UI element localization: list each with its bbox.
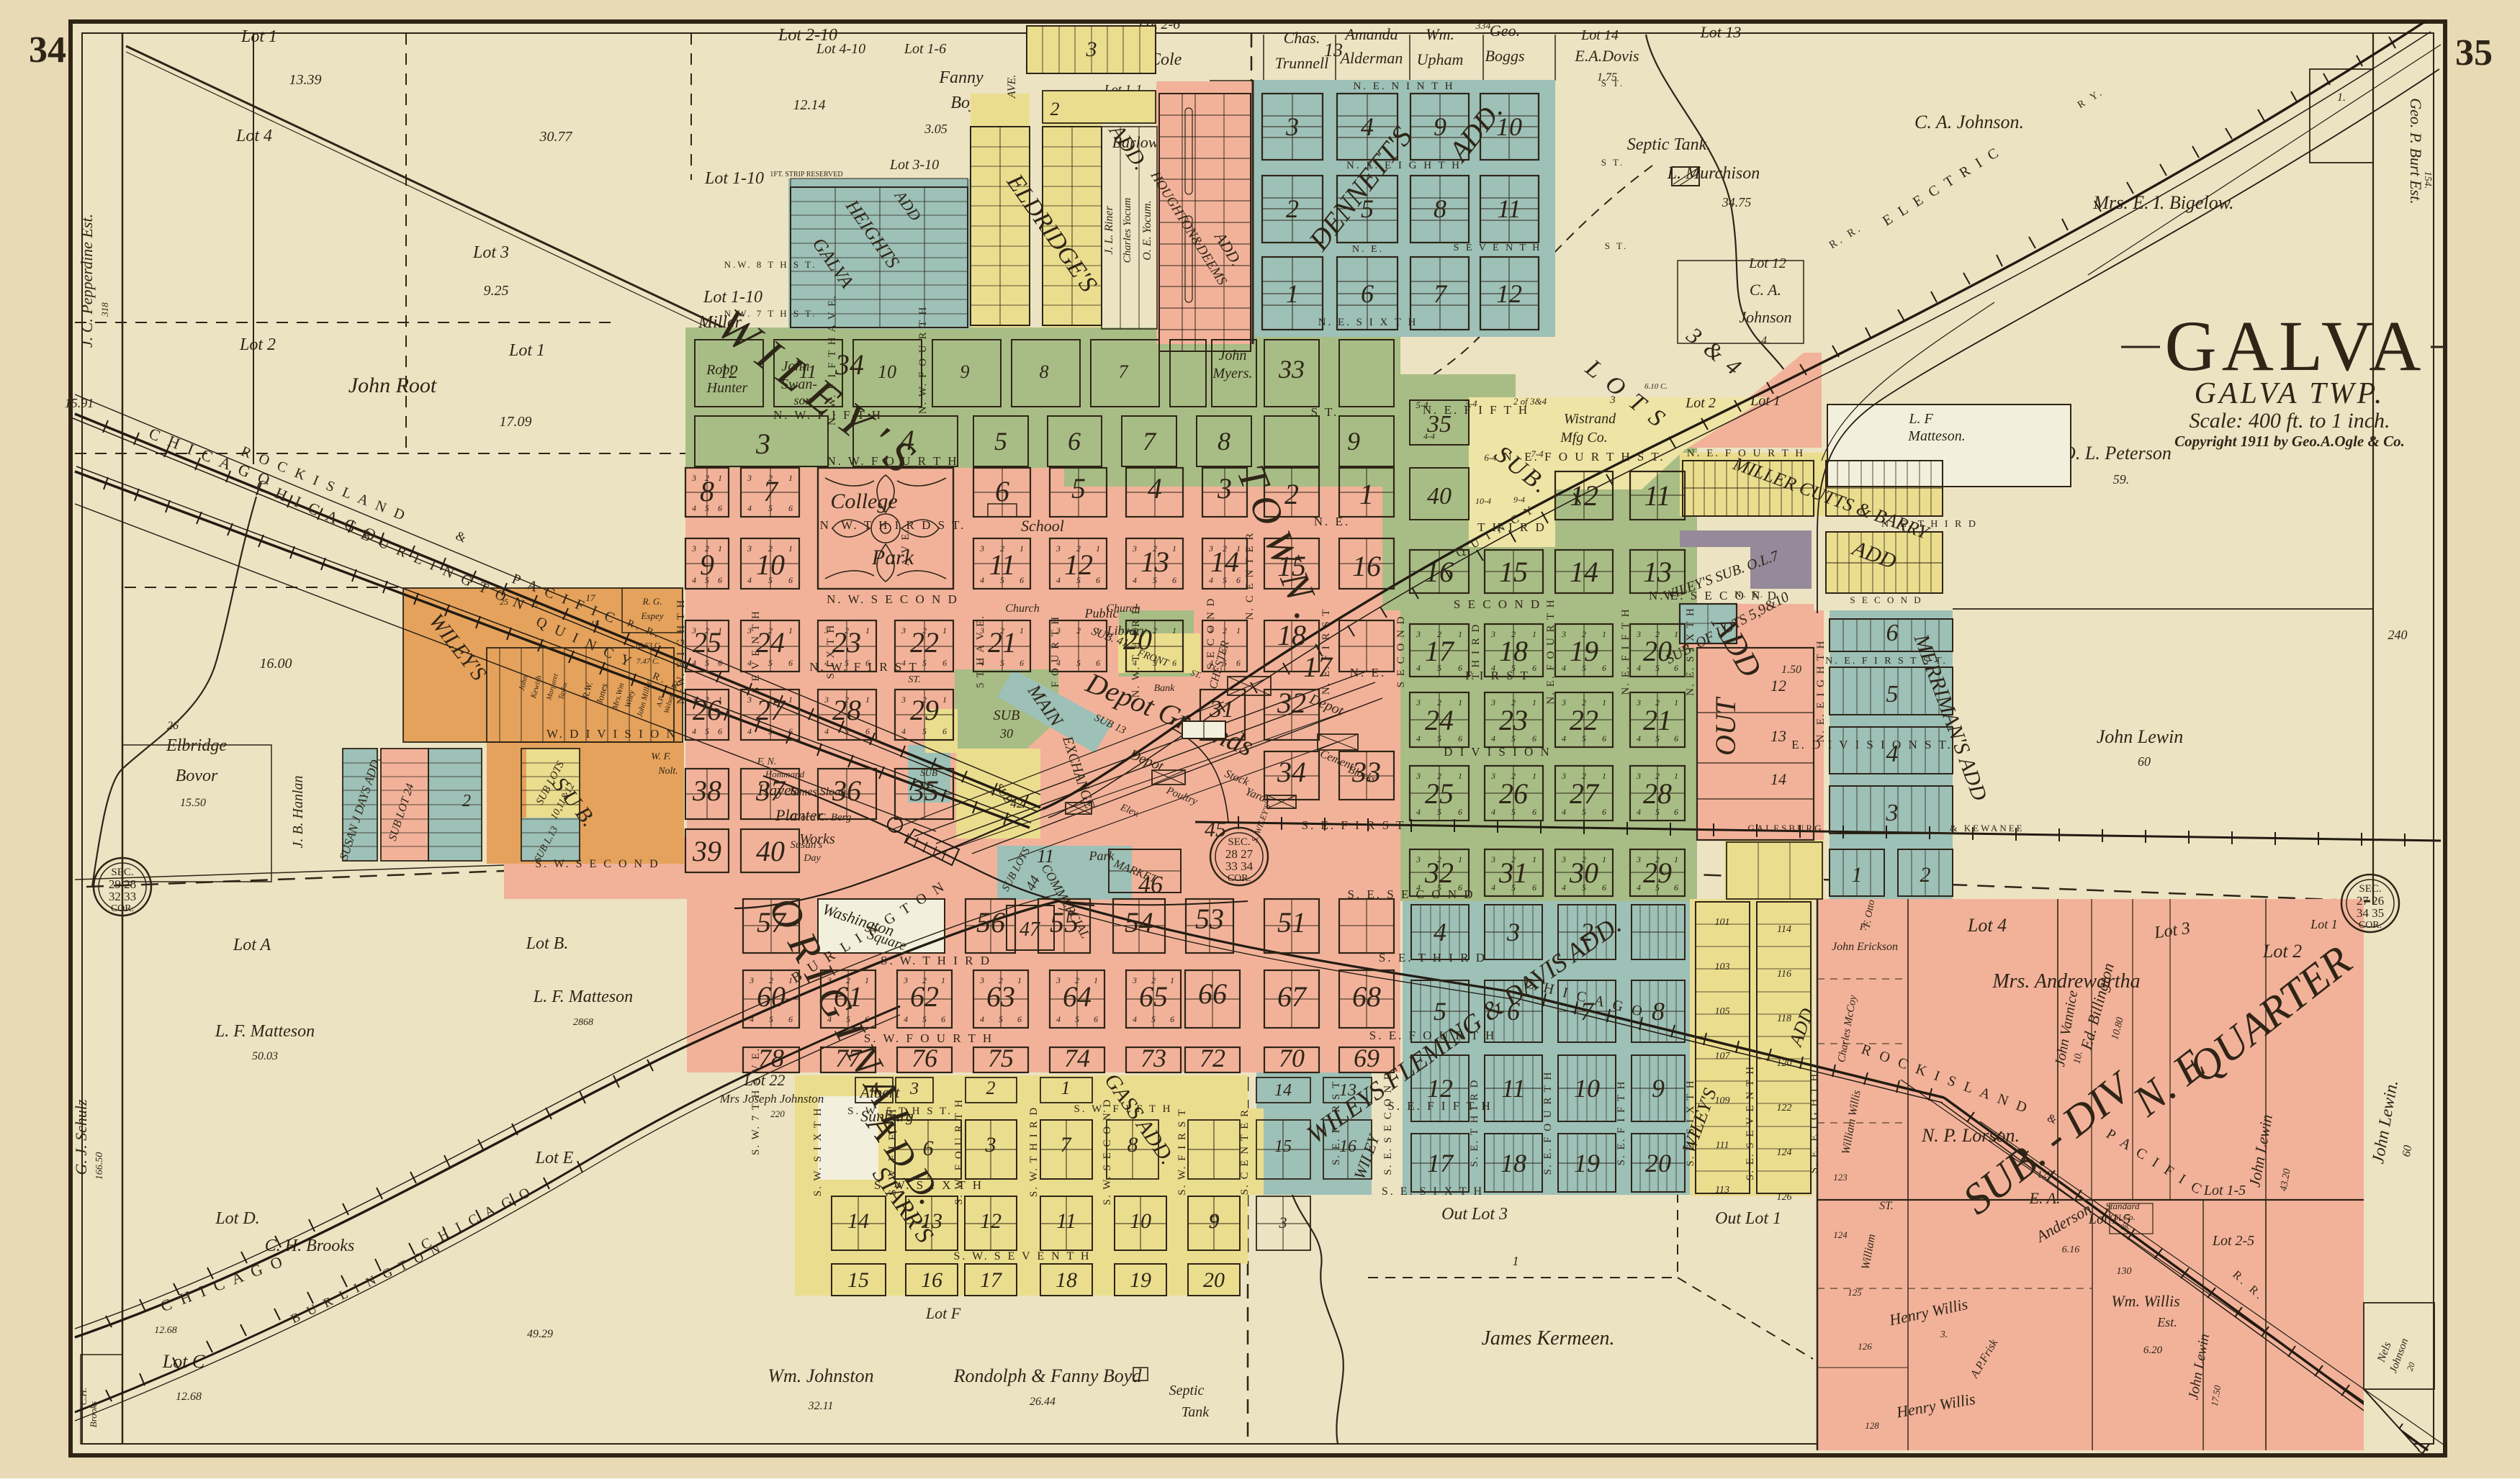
svg-text:Planter: Planter bbox=[775, 806, 823, 824]
svg-text:6: 6 bbox=[788, 503, 793, 513]
svg-text:1: 1 bbox=[788, 625, 793, 636]
svg-text:2: 2 bbox=[1582, 854, 1586, 864]
svg-text:12.14: 12.14 bbox=[793, 97, 826, 113]
svg-text:3: 3 bbox=[1609, 394, 1616, 406]
svg-text:111: 111 bbox=[1716, 1140, 1729, 1151]
svg-text:2: 2 bbox=[1223, 625, 1227, 636]
svg-text:5: 5 bbox=[1511, 733, 1516, 744]
svg-text:18: 18 bbox=[1056, 1268, 1077, 1292]
svg-text:N. E.: N. E. bbox=[1314, 515, 1350, 528]
svg-text:1: 1 bbox=[1172, 625, 1176, 636]
svg-text:123: 123 bbox=[1833, 1172, 1848, 1183]
svg-text:19: 19 bbox=[1574, 1149, 1600, 1178]
svg-text:N. E. E I G H T H: N. E. E I G H T H bbox=[1815, 639, 1827, 742]
svg-text:2: 2 bbox=[1050, 99, 1060, 119]
svg-text:3: 3 bbox=[1490, 629, 1495, 639]
svg-text:15.91: 15.91 bbox=[65, 396, 94, 410]
svg-text:6: 6 bbox=[1532, 663, 1536, 673]
svg-text:N. W. F O U R T H: N. W. F O U R T H bbox=[827, 454, 958, 468]
svg-text:1.50: 1.50 bbox=[1781, 664, 1801, 676]
svg-text:6: 6 bbox=[718, 658, 722, 668]
svg-text:6: 6 bbox=[1017, 1014, 1022, 1024]
svg-text:5: 5 bbox=[1437, 733, 1441, 744]
svg-text:26.44: 26.44 bbox=[1030, 1396, 1056, 1408]
svg-text:5: 5 bbox=[1437, 807, 1441, 817]
svg-text:68: 68 bbox=[1352, 980, 1381, 1013]
svg-text:9: 9 bbox=[1210, 1211, 1219, 1232]
svg-text:N. E. F I F T H: N. E. F I F T H bbox=[1620, 607, 1632, 695]
svg-text:3: 3 bbox=[755, 428, 770, 460]
svg-text:John: John bbox=[1219, 348, 1247, 363]
svg-text:6: 6 bbox=[1602, 663, 1606, 673]
svg-text:130: 130 bbox=[2117, 1266, 2132, 1277]
svg-text:College: College bbox=[830, 489, 897, 513]
svg-text:6: 6 bbox=[1361, 279, 1374, 308]
svg-text:6-4: 6-4 bbox=[1484, 452, 1497, 463]
svg-text:3: 3 bbox=[1636, 697, 1641, 708]
svg-text:6: 6 bbox=[1458, 663, 1462, 673]
svg-text:1: 1 bbox=[1532, 629, 1536, 639]
svg-text:W. D I V I S I O N: W. D I V I S I O N bbox=[546, 727, 678, 741]
svg-text:G. J. Schulz: G. J. Schulz bbox=[72, 1099, 90, 1175]
svg-text:2: 2 bbox=[845, 695, 849, 705]
svg-text:Nolt.: Nolt. bbox=[657, 766, 678, 777]
svg-text:E.A.Dovis: E.A.Dovis bbox=[1574, 47, 1639, 65]
svg-text:Fanny: Fanny bbox=[938, 68, 984, 87]
svg-text:6: 6 bbox=[1068, 427, 1081, 456]
svg-text:12: 12 bbox=[1770, 677, 1786, 695]
svg-text:4: 4 bbox=[1209, 575, 1213, 585]
svg-text:2: 2 bbox=[986, 1077, 996, 1098]
svg-text:SUB: SUB bbox=[920, 767, 937, 778]
svg-text:3: 3 bbox=[1561, 771, 1566, 781]
svg-text:10: 10 bbox=[878, 361, 896, 382]
svg-text:1: 1 bbox=[1020, 625, 1024, 636]
svg-text:S. W. T H I R D: S. W. T H I R D bbox=[881, 954, 991, 967]
svg-text:2: 2 bbox=[922, 625, 927, 636]
svg-text:6: 6 bbox=[1532, 882, 1536, 893]
svg-text:6: 6 bbox=[1094, 1014, 1098, 1024]
svg-text:2: 2 bbox=[768, 543, 773, 554]
svg-text:S. W. F O U R T H: S. W. F O U R T H bbox=[864, 1031, 994, 1045]
svg-text:8: 8 bbox=[1652, 997, 1665, 1026]
svg-text:Rondolph & Fanny Boyd: Rondolph & Fanny Boyd bbox=[953, 1365, 1143, 1386]
svg-text:S. W. F I F T H: S. W. F I F T H bbox=[1074, 1103, 1173, 1115]
svg-text:5: 5 bbox=[1076, 575, 1081, 585]
svg-text:S. E. T H I R D: S. E. T H I R D bbox=[1379, 951, 1487, 964]
svg-text:67: 67 bbox=[1277, 980, 1308, 1013]
svg-text:N. E. F I R S T S T.: N. E. F I R S T S T. bbox=[1825, 656, 1948, 667]
svg-text:25: 25 bbox=[1425, 777, 1454, 810]
svg-text:S. E. F I F T H: S. E. F I F T H bbox=[1616, 1080, 1627, 1166]
svg-text:11: 11 bbox=[1501, 1074, 1525, 1103]
svg-text:23: 23 bbox=[1499, 704, 1528, 736]
svg-text:3: 3 bbox=[1636, 629, 1641, 639]
svg-text:32 33: 32 33 bbox=[109, 890, 136, 903]
svg-text:Elbridge: Elbridge bbox=[166, 736, 227, 755]
svg-text:7: 7 bbox=[534, 602, 539, 610]
svg-text:4: 4 bbox=[1491, 733, 1495, 744]
svg-text:1: 1 bbox=[1674, 697, 1678, 708]
svg-text:14: 14 bbox=[847, 1209, 869, 1233]
svg-text:4: 4 bbox=[1148, 472, 1162, 505]
svg-text:2: 2 bbox=[1511, 771, 1516, 781]
svg-text:76: 76 bbox=[912, 1044, 937, 1072]
svg-text:5: 5 bbox=[705, 658, 709, 668]
svg-text:Day: Day bbox=[803, 853, 821, 864]
svg-text:10: 10 bbox=[1574, 1074, 1600, 1103]
svg-text:15: 15 bbox=[847, 1268, 869, 1292]
svg-text:101: 101 bbox=[1715, 917, 1730, 928]
svg-text:4: 4 bbox=[1133, 1014, 1137, 1024]
svg-text:5: 5 bbox=[1151, 1014, 1156, 1024]
svg-text:Copyright 1911 by Geo.A.Ogle &: Copyright 1911 by Geo.A.Ogle & Co. bbox=[2174, 433, 2405, 450]
svg-text:3: 3 bbox=[1086, 37, 1097, 61]
svg-text:17: 17 bbox=[980, 1268, 1003, 1292]
svg-text:30: 30 bbox=[999, 726, 1013, 741]
svg-text:1: 1 bbox=[718, 473, 722, 483]
svg-text:N. E.: N. E. bbox=[1352, 244, 1384, 255]
svg-text:3: 3 bbox=[1416, 771, 1421, 781]
svg-text:2: 2 bbox=[1511, 629, 1516, 639]
svg-text:3-4: 3-4 bbox=[1464, 398, 1477, 409]
svg-text:46: 46 bbox=[1138, 872, 1163, 898]
svg-text:3: 3 bbox=[1886, 800, 1899, 826]
svg-text:1: 1 bbox=[1170, 975, 1174, 985]
svg-text:3: 3 bbox=[901, 625, 906, 636]
svg-text:3: 3 bbox=[909, 1080, 919, 1098]
svg-text:S E C O N D: S E C O N D bbox=[1205, 597, 1217, 670]
svg-text:2: 2 bbox=[1437, 697, 1441, 708]
svg-text:GALVA: GALVA bbox=[2165, 306, 2426, 386]
svg-text:3: 3 bbox=[901, 695, 906, 705]
svg-text:16: 16 bbox=[1425, 556, 1454, 588]
svg-text:S E V E N T H: S E V E N T H bbox=[1454, 243, 1542, 253]
svg-text:Hayes: Hayes bbox=[757, 781, 798, 799]
svg-text:49.29: 49.29 bbox=[527, 1328, 553, 1340]
svg-text:1: 1 bbox=[1236, 543, 1241, 554]
svg-text:12: 12 bbox=[1570, 479, 1598, 512]
svg-text:1: 1 bbox=[1458, 854, 1462, 864]
svg-text:N. W. F I F T H A V E.: N. W. F I F T H A V E. bbox=[827, 294, 838, 425]
svg-text:70: 70 bbox=[1279, 1044, 1305, 1072]
svg-text:6: 6 bbox=[1458, 807, 1462, 817]
svg-text:2: 2 bbox=[922, 695, 927, 705]
svg-text:4: 4 bbox=[747, 726, 752, 736]
svg-text:N.W. 8 T H S T.: N.W. 8 T H S T. bbox=[724, 259, 817, 270]
svg-text:2: 2 bbox=[1655, 629, 1660, 639]
svg-text:GALVA TWP.: GALVA TWP. bbox=[2195, 377, 2385, 410]
svg-text:A V E.: A V E. bbox=[900, 528, 912, 566]
svg-text:34: 34 bbox=[1277, 756, 1306, 788]
svg-text:Johnson: Johnson bbox=[1739, 308, 1791, 326]
svg-text:N. E. S I X T H: N. E. S I X T H bbox=[1318, 317, 1418, 328]
svg-text:4.: 4. bbox=[1761, 335, 1770, 347]
svg-text:Lot 3: Lot 3 bbox=[472, 243, 509, 262]
svg-text:2: 2 bbox=[768, 625, 773, 636]
svg-text:6: 6 bbox=[718, 503, 722, 513]
svg-text:N. E. F O U R T H: N. E. F O U R T H bbox=[1687, 448, 1805, 459]
svg-text:N. W. F O U R T H: N. W. F O U R T H bbox=[917, 306, 929, 415]
svg-text:5: 5 bbox=[1655, 733, 1660, 744]
svg-text:3: 3 bbox=[1285, 112, 1299, 141]
svg-text:11: 11 bbox=[1056, 1209, 1076, 1233]
svg-text:W. F.: W. F. bbox=[651, 751, 671, 762]
svg-text:20: 20 bbox=[1645, 1149, 1671, 1178]
svg-text:33 34: 33 34 bbox=[1225, 859, 1254, 873]
svg-text:S E C O N D: S E C O N D bbox=[1454, 597, 1542, 611]
svg-text:Lot 4: Lot 4 bbox=[235, 127, 272, 145]
svg-text:240: 240 bbox=[2388, 628, 2408, 642]
svg-text:1: 1 bbox=[865, 695, 870, 705]
svg-text:C. A. Johnson.: C. A. Johnson. bbox=[1914, 112, 2024, 132]
svg-text:Lot 1-10: Lot 1-10 bbox=[704, 169, 764, 188]
svg-text:Out Lot 3: Out Lot 3 bbox=[1441, 1205, 1508, 1224]
svg-text:47: 47 bbox=[1020, 918, 1040, 941]
svg-text:Albert: Albert bbox=[859, 1083, 901, 1101]
svg-text:Hunter: Hunter bbox=[706, 380, 748, 396]
svg-text:5: 5 bbox=[1511, 807, 1516, 817]
svg-text:24: 24 bbox=[1425, 704, 1454, 736]
svg-text:1: 1 bbox=[941, 975, 945, 985]
svg-text:N. E. N I N T H: N. E. N I N T H bbox=[1353, 81, 1454, 92]
svg-text:J. B. Hanlan: J. B. Hanlan bbox=[290, 775, 306, 848]
svg-text:L. F. Matteson: L. F. Matteson bbox=[215, 1022, 315, 1041]
svg-text:2: 2 bbox=[705, 543, 709, 554]
svg-text:40: 40 bbox=[1427, 483, 1452, 510]
svg-text:2: 2 bbox=[1655, 854, 1660, 864]
svg-text:N. E. S I X T H: N. E. S I X T H bbox=[1685, 607, 1696, 696]
svg-text:16: 16 bbox=[1352, 550, 1381, 582]
svg-text:3: 3 bbox=[1506, 918, 1520, 946]
svg-text:105: 105 bbox=[1715, 1006, 1730, 1017]
svg-text:3: 3 bbox=[824, 695, 829, 705]
svg-text:2: 2 bbox=[1223, 543, 1227, 554]
svg-text:COR.: COR. bbox=[1228, 873, 1251, 884]
svg-text:3: 3 bbox=[985, 1133, 996, 1157]
svg-text:5: 5 bbox=[922, 726, 927, 736]
svg-text:9: 9 bbox=[1652, 1074, 1665, 1103]
svg-text:33: 33 bbox=[1278, 355, 1305, 384]
svg-text:3: 3 bbox=[1056, 975, 1061, 985]
svg-text:5: 5 bbox=[768, 658, 773, 668]
svg-text:John Root: John Root bbox=[348, 374, 437, 397]
svg-text:Lot 13: Lot 13 bbox=[1700, 23, 1742, 41]
svg-text:5: 5 bbox=[705, 726, 709, 736]
svg-text:9-4: 9-4 bbox=[1513, 494, 1525, 505]
svg-text:116: 116 bbox=[1777, 969, 1791, 980]
svg-text:3: 3 bbox=[1279, 1214, 1287, 1232]
svg-text:5: 5 bbox=[705, 575, 709, 585]
svg-text:22: 22 bbox=[1570, 704, 1598, 736]
svg-text:10-4: 10-4 bbox=[1475, 496, 1491, 506]
svg-text:S. E. F I R S T: S. E. F I R S T bbox=[1302, 818, 1406, 832]
svg-text:11: 11 bbox=[1497, 194, 1521, 223]
svg-text:C.H.: C.H. bbox=[78, 1388, 89, 1406]
svg-text:12: 12 bbox=[1496, 279, 1522, 308]
svg-text:4: 4 bbox=[692, 726, 696, 736]
svg-text:13: 13 bbox=[1770, 727, 1786, 745]
svg-text:Lot 14: Lot 14 bbox=[1580, 27, 1619, 43]
svg-text:12: 12 bbox=[980, 1209, 1002, 1233]
svg-text:N. E. F O U R T H: N. E. F O U R T H bbox=[1545, 598, 1557, 704]
svg-text:4: 4 bbox=[692, 503, 696, 513]
svg-text:2: 2 bbox=[1153, 543, 1157, 554]
svg-text:Wm.: Wm. bbox=[1426, 25, 1454, 43]
svg-text:Lot 3-10: Lot 3-10 bbox=[889, 157, 939, 173]
svg-text:1: 1 bbox=[942, 625, 947, 636]
svg-text:1: 1 bbox=[1532, 771, 1536, 781]
svg-text:4: 4 bbox=[1491, 882, 1495, 893]
svg-text:Lot 4: Lot 4 bbox=[1967, 915, 2007, 936]
svg-text:7: 7 bbox=[1143, 427, 1157, 456]
svg-text:School: School bbox=[1021, 517, 1064, 535]
svg-text:16: 16 bbox=[921, 1268, 942, 1292]
svg-text:6: 6 bbox=[865, 726, 870, 736]
svg-text:SEC.: SEC. bbox=[2359, 883, 2381, 895]
svg-text:S T.: S T. bbox=[1311, 405, 1339, 419]
svg-text:S. E. S E V E N T H: S. E. S E V E N T H bbox=[1745, 1065, 1756, 1180]
svg-text:4: 4 bbox=[904, 1014, 908, 1024]
svg-text:N. E. F I R S T: N. E. F I R S T bbox=[1320, 608, 1332, 695]
svg-text:30.77: 30.77 bbox=[539, 129, 573, 145]
svg-text:5: 5 bbox=[1511, 882, 1516, 893]
svg-text:2868: 2868 bbox=[573, 1017, 593, 1028]
svg-text:14: 14 bbox=[1570, 556, 1598, 588]
svg-text:Lot 1: Lot 1 bbox=[508, 341, 545, 360]
svg-text:4: 4 bbox=[747, 503, 752, 513]
svg-text:6: 6 bbox=[1172, 658, 1176, 668]
svg-text:74: 74 bbox=[1064, 1044, 1090, 1072]
svg-text:1: 1 bbox=[1458, 771, 1462, 781]
svg-text:Alderman: Alderman bbox=[1339, 49, 1403, 67]
svg-text:Lot 1: Lot 1 bbox=[240, 27, 277, 46]
svg-text:14: 14 bbox=[1274, 1081, 1292, 1100]
svg-text:17.09: 17.09 bbox=[500, 414, 532, 430]
svg-text:4: 4 bbox=[824, 726, 829, 736]
svg-text:5: 5 bbox=[705, 503, 709, 513]
svg-text:N. E. E I G H T H: N. E. E I G H T H bbox=[1346, 160, 1462, 171]
svg-text:4: 4 bbox=[901, 726, 906, 736]
svg-text:6: 6 bbox=[942, 658, 947, 668]
svg-text:6: 6 bbox=[788, 658, 793, 668]
svg-text:4: 4 bbox=[1416, 733, 1421, 744]
svg-text:2: 2 bbox=[1582, 629, 1586, 639]
svg-text:50.03: 50.03 bbox=[252, 1050, 278, 1062]
svg-text:1: 1 bbox=[1359, 478, 1374, 510]
svg-text:5: 5 bbox=[1582, 882, 1586, 893]
svg-text:54: 54 bbox=[1125, 906, 1153, 939]
svg-text:4: 4 bbox=[980, 1014, 984, 1024]
svg-text:O. L. Peterson: O. L. Peterson bbox=[2062, 443, 2172, 464]
svg-text:S T.: S T. bbox=[1601, 78, 1624, 89]
svg-text:1: 1 bbox=[1020, 543, 1024, 554]
svg-text:6: 6 bbox=[941, 1014, 945, 1024]
svg-text:8: 8 bbox=[1040, 361, 1049, 382]
svg-text:5: 5 bbox=[1076, 658, 1081, 668]
svg-text:6: 6 bbox=[1532, 733, 1536, 744]
svg-text:3: 3 bbox=[1561, 697, 1566, 708]
svg-text:J. C. Pepperdine Est.: J. C. Pepperdine Est. bbox=[78, 214, 96, 348]
svg-text:1: 1 bbox=[942, 695, 947, 705]
svg-text:11: 11 bbox=[1037, 846, 1054, 867]
svg-text:60: 60 bbox=[2400, 1144, 2415, 1158]
svg-text:16.00: 16.00 bbox=[260, 656, 292, 672]
svg-text:7: 7 bbox=[1061, 1133, 1073, 1157]
svg-text:60: 60 bbox=[2138, 754, 2151, 769]
svg-text:34 35: 34 35 bbox=[2357, 906, 2384, 920]
svg-text:122: 122 bbox=[1777, 1103, 1792, 1113]
svg-text:Hommand: Hommand bbox=[765, 769, 805, 780]
svg-text:103: 103 bbox=[1715, 962, 1730, 972]
svg-text:Lot B.: Lot B. bbox=[526, 934, 569, 953]
svg-text:Lot D.: Lot D. bbox=[215, 1209, 259, 1228]
svg-text:3: 3 bbox=[1056, 543, 1061, 554]
svg-text:6: 6 bbox=[1674, 807, 1678, 817]
svg-text:13: 13 bbox=[1643, 556, 1672, 588]
svg-text:Wm. Johnston: Wm. Johnston bbox=[768, 1365, 873, 1386]
svg-text:126: 126 bbox=[1858, 1341, 1872, 1352]
svg-text:Geo.: Geo. bbox=[1490, 22, 1520, 40]
svg-text:64: 64 bbox=[1063, 980, 1092, 1013]
svg-text:1: 1 bbox=[1532, 854, 1536, 864]
svg-text:334: 334 bbox=[1475, 21, 1491, 32]
svg-text:Lot F: Lot F bbox=[925, 1304, 961, 1322]
svg-text:40: 40 bbox=[756, 835, 785, 867]
svg-text:2: 2 bbox=[705, 695, 709, 705]
svg-text:1: 1 bbox=[718, 543, 722, 554]
svg-text:78: 78 bbox=[758, 1044, 784, 1072]
svg-text:9.25: 9.25 bbox=[484, 283, 509, 299]
svg-text:13.39: 13.39 bbox=[289, 72, 322, 88]
svg-text:S I X T H: S I X T H bbox=[825, 624, 837, 679]
svg-text:1: 1 bbox=[865, 625, 870, 636]
svg-text:17: 17 bbox=[1427, 1149, 1454, 1178]
svg-text:4: 4 bbox=[1562, 882, 1566, 893]
svg-text:Wistrand: Wistrand bbox=[1564, 411, 1616, 427]
svg-text:2: 2 bbox=[1076, 625, 1081, 636]
svg-text:Lot E: Lot E bbox=[535, 1149, 574, 1167]
svg-text:5: 5 bbox=[1075, 1014, 1079, 1024]
svg-text:14: 14 bbox=[1770, 770, 1786, 788]
svg-text:Charles Yocum: Charles Yocum bbox=[1122, 197, 1133, 263]
svg-text:N. C E N T E R: N. C E N T E R bbox=[1244, 532, 1256, 620]
svg-text:26: 26 bbox=[1499, 777, 1528, 810]
svg-text:Bank: Bank bbox=[1154, 683, 1176, 694]
svg-text:S. W. 5 T H S T.: S. W. 5 T H S T. bbox=[847, 1106, 953, 1117]
svg-text:4: 4 bbox=[692, 575, 696, 585]
svg-text:J. L. Riner: J. L. Riner bbox=[1103, 205, 1115, 254]
svg-text:Lot 2: Lot 2 bbox=[2262, 941, 2302, 962]
svg-text:L. F. Matteson: L. F. Matteson bbox=[533, 988, 633, 1006]
svg-text:SUB: SUB bbox=[994, 708, 1020, 723]
svg-text:27: 27 bbox=[1570, 777, 1600, 810]
svg-text:3: 3 bbox=[1416, 629, 1421, 639]
svg-text:S. W. F I F T H: S. W. F I F T H bbox=[887, 1108, 899, 1196]
svg-text:3: 3 bbox=[691, 473, 696, 483]
svg-text:6: 6 bbox=[1602, 882, 1606, 893]
svg-text:S E C O N D: S E C O N D bbox=[1850, 595, 1922, 605]
svg-text:154.: 154. bbox=[2422, 171, 2433, 189]
svg-text:5: 5 bbox=[1655, 882, 1660, 893]
svg-text:S. W. T H I R D: S. W. T H I R D bbox=[1028, 1106, 1040, 1197]
svg-text:53: 53 bbox=[1195, 903, 1224, 935]
svg-text:O. E. Yocum.: O. E. Yocum. bbox=[1141, 200, 1153, 260]
svg-text:5: 5 bbox=[769, 1014, 773, 1024]
svg-text:26: 26 bbox=[167, 720, 179, 732]
svg-text:4: 4 bbox=[1562, 733, 1566, 744]
svg-text:3: 3 bbox=[1636, 771, 1641, 781]
